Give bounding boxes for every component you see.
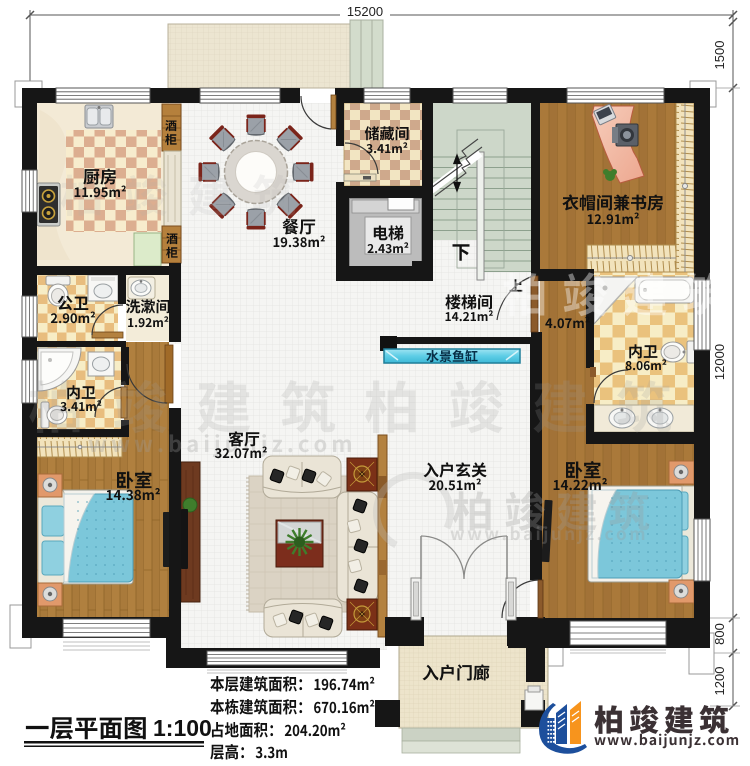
svg-text:1:100: 1:100 <box>153 715 212 741</box>
svg-text:15200: 15200 <box>347 4 383 19</box>
svg-text:1500: 1500 <box>712 41 727 70</box>
svg-text:12000: 12000 <box>712 344 727 380</box>
